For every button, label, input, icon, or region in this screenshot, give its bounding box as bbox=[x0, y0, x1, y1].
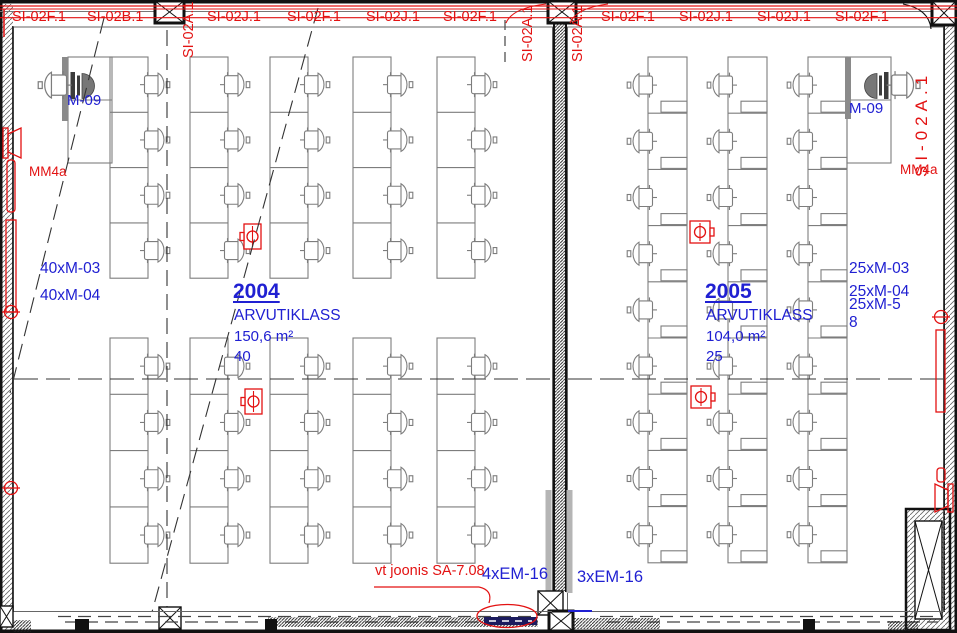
chair-symbol bbox=[627, 522, 657, 547]
desk-column bbox=[270, 57, 308, 278]
chair-symbol bbox=[707, 410, 737, 435]
chair-symbol bbox=[467, 410, 497, 435]
chair-symbol bbox=[707, 522, 737, 547]
desk-shelf bbox=[661, 101, 687, 112]
floor-outlet-symbol bbox=[691, 386, 715, 408]
room-number: 2004 bbox=[233, 281, 280, 303]
desk-column bbox=[353, 57, 391, 278]
chair-symbol bbox=[300, 183, 330, 208]
desk-shelf bbox=[741, 157, 767, 168]
sight-line bbox=[10, 18, 104, 393]
grid-axis-label: SI-02J.1 bbox=[207, 10, 261, 25]
chair-symbol bbox=[220, 466, 250, 491]
chair-symbol bbox=[140, 127, 170, 152]
chair-symbol bbox=[300, 238, 330, 263]
grid-axis-label: SI-02F.1 bbox=[12, 10, 66, 25]
desk-shelf bbox=[661, 382, 687, 393]
grid-axis-label: SI-02A.1 bbox=[571, 6, 586, 62]
desk-shelf bbox=[661, 157, 687, 168]
equipment-line: 40xM-04 bbox=[40, 288, 100, 304]
desk-shelf bbox=[821, 214, 847, 225]
desk-shelf bbox=[741, 551, 767, 562]
chair-symbol bbox=[300, 127, 330, 152]
desk-shelf bbox=[821, 438, 847, 449]
desk-shelf bbox=[821, 157, 847, 168]
desk-shelf bbox=[661, 495, 687, 506]
chair-symbol bbox=[140, 410, 170, 435]
room-number: 2005 bbox=[705, 281, 752, 303]
chair-symbol bbox=[383, 354, 413, 379]
chair-symbol bbox=[627, 466, 657, 491]
chair-symbol bbox=[627, 73, 657, 98]
desk-shelf bbox=[661, 326, 687, 337]
chair-symbol bbox=[787, 522, 817, 547]
chair-symbol bbox=[787, 354, 817, 379]
desk-shelf bbox=[661, 270, 687, 281]
equipment-line: 25xM-03 bbox=[849, 261, 909, 277]
chair-symbol bbox=[627, 185, 657, 210]
chair-symbol bbox=[707, 73, 737, 98]
chair-symbol bbox=[467, 72, 497, 97]
room-seat-count: 40 bbox=[234, 349, 251, 365]
floor-plan-canvas: 2004 ARVUTIKLASS 150,6 m² 40 2005 ARVUTI… bbox=[0, 0, 957, 633]
chair-symbol bbox=[220, 127, 250, 152]
chair-symbol bbox=[383, 127, 413, 152]
chair-symbol bbox=[467, 183, 497, 208]
chair-symbol bbox=[467, 238, 497, 263]
chair-symbol bbox=[220, 183, 250, 208]
desk-column bbox=[437, 338, 475, 563]
chair-symbol bbox=[467, 354, 497, 379]
chair-symbol bbox=[300, 466, 330, 491]
chair-symbol bbox=[140, 183, 170, 208]
grid-axis-label: SI-02A.1 bbox=[182, 2, 197, 58]
chair-symbol bbox=[627, 354, 657, 379]
em-fixture-label-right: 3xEM-16 bbox=[577, 569, 643, 586]
desk-column bbox=[270, 338, 308, 563]
desk-column bbox=[353, 338, 391, 563]
column-x-symbol bbox=[549, 611, 573, 631]
floor-outlet-symbol bbox=[241, 389, 262, 414]
column-x-symbol bbox=[932, 1, 956, 25]
desk-column bbox=[110, 57, 148, 278]
reference-note: vt joonis SA-7.08 bbox=[375, 564, 485, 579]
teacher-workstation-symbol bbox=[62, 57, 112, 163]
equipment-line: 8 bbox=[849, 315, 858, 331]
column-x-symbol bbox=[155, 1, 184, 23]
desk-shelf bbox=[661, 551, 687, 562]
grid-axis-label: SI-02J.1 bbox=[679, 10, 733, 25]
room-name: ARVUTIKLASS bbox=[706, 308, 813, 324]
chair-symbol bbox=[787, 185, 817, 210]
grid-axis-label: SI-02A.1 bbox=[913, 71, 931, 177]
desk-shelf bbox=[821, 270, 847, 281]
wall-marker-left: MM4a bbox=[29, 165, 67, 179]
desk-shelf bbox=[661, 438, 687, 449]
chair-symbol bbox=[787, 466, 817, 491]
grid-axis-label: SI-02J.1 bbox=[757, 10, 811, 25]
chair-symbol bbox=[300, 72, 330, 97]
floor-outlet-symbol bbox=[690, 221, 714, 243]
chair-symbol bbox=[140, 523, 170, 548]
desk-shelf bbox=[741, 495, 767, 506]
workstation-label-right: M-09 bbox=[849, 101, 883, 117]
chair-symbol bbox=[467, 523, 497, 548]
chair-symbol bbox=[300, 523, 330, 548]
floor-plan-drawing bbox=[0, 0, 957, 633]
chair-symbol bbox=[220, 523, 250, 548]
desk-shelf bbox=[741, 101, 767, 112]
chair-symbol bbox=[140, 466, 170, 491]
equipment-line: 40xM-03 bbox=[40, 261, 100, 277]
chair-symbol bbox=[467, 127, 497, 152]
grid-axis-label: SI-02A.1 bbox=[521, 6, 536, 62]
chair-symbol bbox=[787, 73, 817, 98]
desk-shelf bbox=[741, 438, 767, 449]
room-name: ARVUTIKLASS bbox=[234, 308, 341, 324]
chair-symbol bbox=[627, 410, 657, 435]
chair-symbol bbox=[787, 129, 817, 154]
desk-shelf bbox=[741, 382, 767, 393]
chair-symbol bbox=[383, 523, 413, 548]
equipment-line: 25xM-5 bbox=[849, 297, 901, 313]
door-swing-arc bbox=[903, 4, 931, 29]
chair-symbol bbox=[707, 241, 737, 266]
grid-axis-label: SI-02F.1 bbox=[287, 10, 341, 25]
grid-axis-label: SI-02F.1 bbox=[835, 10, 889, 25]
desk-shelf bbox=[821, 101, 847, 112]
desk-column bbox=[110, 338, 148, 563]
chair-symbol bbox=[300, 410, 330, 435]
chair-symbol bbox=[383, 238, 413, 263]
chair-symbol bbox=[140, 238, 170, 263]
column-x-symbol bbox=[0, 606, 13, 627]
room-seat-count: 25 bbox=[706, 349, 723, 365]
desk-shelf bbox=[821, 382, 847, 393]
chair-symbol bbox=[140, 354, 170, 379]
grid-axis-label: SI-02J.1 bbox=[366, 10, 420, 25]
chair-symbol bbox=[707, 466, 737, 491]
desk-column bbox=[190, 57, 228, 278]
chair-symbol bbox=[467, 466, 497, 491]
grid-axis-label: SI-02B.1 bbox=[87, 10, 143, 25]
desk-shelf bbox=[821, 495, 847, 506]
chair-symbol bbox=[383, 466, 413, 491]
chair-symbol bbox=[383, 72, 413, 97]
column-x-symbol bbox=[159, 607, 181, 629]
chair-symbol bbox=[383, 183, 413, 208]
bottom-layer bbox=[13, 587, 943, 632]
grid-axis-label: SI-02F.1 bbox=[443, 10, 497, 25]
chair-symbol bbox=[383, 410, 413, 435]
chair-symbol bbox=[220, 72, 250, 97]
grid-axis-label: SI-02F.1 bbox=[601, 10, 655, 25]
chair-symbol bbox=[627, 241, 657, 266]
workstation-label-left: M-09 bbox=[67, 93, 101, 109]
em-fixture-label-left: 4xEM-16 bbox=[482, 566, 548, 583]
chair-symbol bbox=[627, 129, 657, 154]
desk-column bbox=[190, 338, 228, 563]
room-area: 150,6 m² bbox=[234, 329, 293, 345]
chair-symbol bbox=[300, 354, 330, 379]
chair-symbol bbox=[787, 241, 817, 266]
desk-shelf bbox=[661, 214, 687, 225]
room-area: 104,0 m² bbox=[706, 329, 765, 345]
chair-symbol bbox=[140, 72, 170, 97]
chair-symbol bbox=[707, 185, 737, 210]
desk-shelf bbox=[821, 551, 847, 562]
chair-symbol bbox=[627, 297, 657, 322]
desk-shelf bbox=[821, 326, 847, 337]
desk-column bbox=[437, 57, 475, 278]
chair-symbol bbox=[787, 410, 817, 435]
chair-symbol bbox=[707, 129, 737, 154]
desk-shelf bbox=[741, 214, 767, 225]
